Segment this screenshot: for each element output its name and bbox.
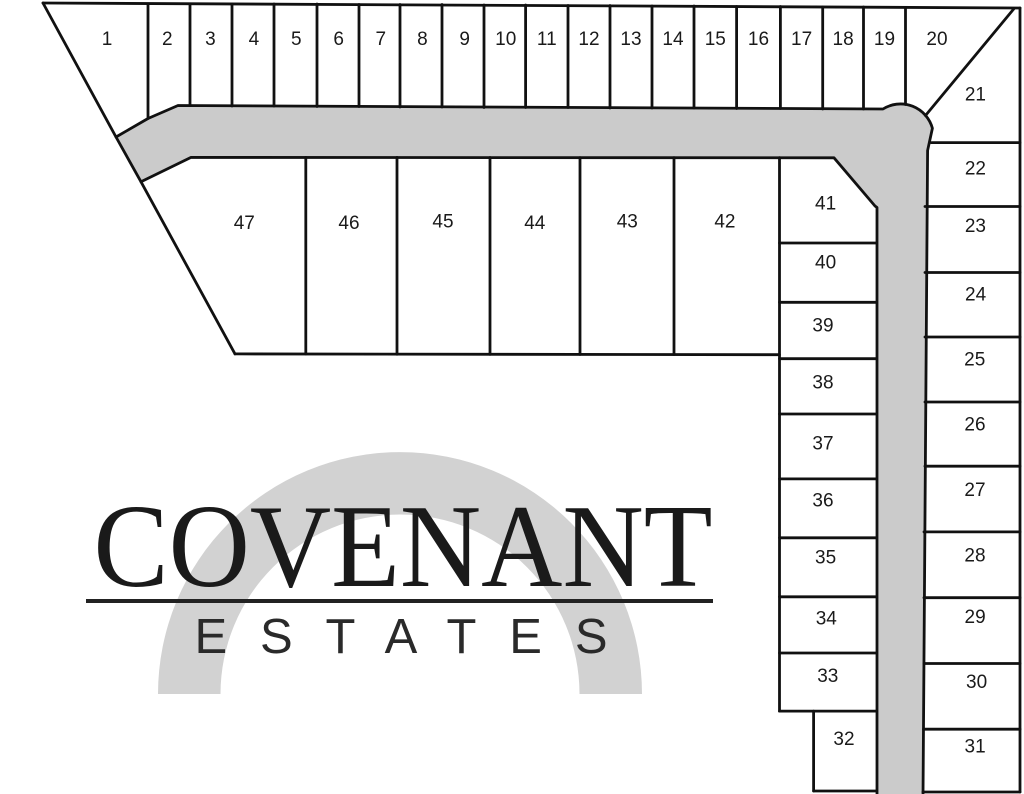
svg-text:28: 28	[964, 546, 985, 567]
svg-text:41: 41	[815, 193, 836, 214]
svg-text:35: 35	[815, 547, 836, 568]
svg-text:19: 19	[874, 29, 895, 50]
svg-text:16: 16	[748, 29, 769, 50]
svg-text:22: 22	[965, 159, 986, 180]
svg-text:38: 38	[812, 373, 833, 394]
svg-text:47: 47	[234, 213, 255, 234]
svg-text:20: 20	[926, 29, 947, 50]
svg-text:4: 4	[249, 29, 260, 50]
svg-text:45: 45	[432, 211, 453, 232]
svg-text:31: 31	[965, 737, 986, 758]
svg-text:8: 8	[417, 29, 428, 50]
svg-text:32: 32	[833, 729, 854, 750]
svg-text:3: 3	[205, 29, 216, 50]
svg-text:33: 33	[817, 666, 838, 687]
svg-text:30: 30	[966, 672, 987, 693]
svg-text:18: 18	[833, 29, 854, 50]
svg-text:7: 7	[376, 29, 387, 50]
svg-text:40: 40	[815, 253, 836, 274]
svg-text:COVENANT: COVENANT	[94, 480, 713, 612]
svg-text:9: 9	[459, 29, 470, 50]
svg-text:36: 36	[812, 491, 833, 512]
svg-text:5: 5	[291, 29, 302, 50]
svg-text:2: 2	[162, 29, 173, 50]
svg-text:42: 42	[714, 211, 735, 232]
svg-text:14: 14	[662, 29, 684, 50]
svg-text:1: 1	[102, 29, 113, 50]
svg-text:27: 27	[964, 480, 985, 501]
svg-text:15: 15	[705, 29, 726, 50]
svg-text:25: 25	[964, 349, 985, 370]
svg-text:43: 43	[617, 211, 638, 232]
svg-text:37: 37	[812, 434, 833, 455]
svg-text:34: 34	[816, 609, 838, 630]
svg-text:39: 39	[812, 316, 833, 337]
svg-text:6: 6	[333, 29, 344, 50]
svg-text:17: 17	[791, 29, 812, 50]
svg-text:11: 11	[537, 29, 557, 50]
svg-text:10: 10	[495, 29, 516, 50]
svg-text:21: 21	[965, 85, 986, 106]
svg-text:13: 13	[620, 29, 641, 50]
svg-text:44: 44	[524, 213, 546, 234]
svg-text:29: 29	[965, 607, 986, 628]
svg-text:23: 23	[965, 216, 986, 237]
svg-text:12: 12	[578, 29, 599, 50]
svg-text:24: 24	[965, 284, 987, 305]
svg-text:46: 46	[338, 213, 359, 234]
svg-text:26: 26	[964, 415, 985, 436]
